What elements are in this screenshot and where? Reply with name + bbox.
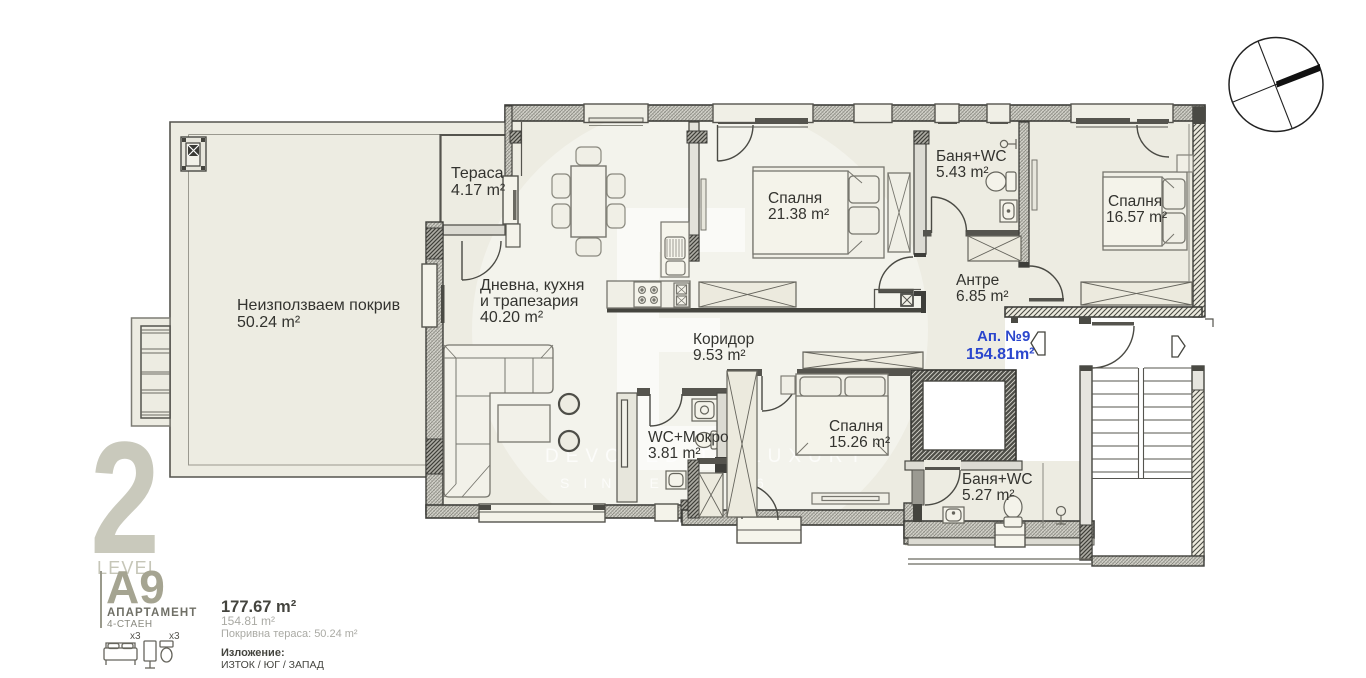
svg-text:Покривна тераса: 50.24 m²: Покривна тераса: 50.24 m²: [221, 628, 358, 640]
svg-text:9.53 m²: 9.53 m²: [693, 347, 746, 364]
svg-text:и трапезария: и трапезария: [480, 293, 578, 310]
svg-text:Спалня: Спалня: [768, 190, 822, 207]
svg-text:A9: A9: [106, 561, 165, 613]
svg-text:Баня+WC: Баня+WC: [936, 148, 1007, 165]
svg-text:Спалня: Спалня: [829, 418, 883, 435]
svg-text:16.57 m²: 16.57 m²: [1106, 209, 1167, 226]
svg-text:154.81m²: 154.81m²: [966, 346, 1035, 363]
svg-text:6.85 m²: 6.85 m²: [956, 288, 1009, 305]
svg-text:40.20 m²: 40.20 m²: [480, 309, 544, 326]
svg-text:Баня+WC: Баня+WC: [962, 471, 1033, 488]
svg-text:21.38 m²: 21.38 m²: [768, 206, 829, 223]
svg-text:Дневна, кухня: Дневна, кухня: [480, 277, 584, 294]
svg-text:50.24 m²: 50.24 m²: [237, 314, 301, 331]
svg-text:4-СТАЕН: 4-СТАЕН: [107, 619, 153, 630]
svg-text:Изложение:: Изложение:: [221, 647, 285, 659]
svg-text:4.17 m²: 4.17 m²: [451, 182, 506, 199]
svg-text:ИЗТОК / ЮГ / ЗАПАД: ИЗТОК / ЮГ / ЗАПАД: [221, 659, 324, 671]
svg-text:15.26 m²: 15.26 m²: [829, 434, 890, 451]
svg-text:3.81 m²: 3.81 m²: [648, 445, 701, 462]
svg-text:Антре: Антре: [956, 272, 999, 289]
svg-text:АПАРТАМЕНТ: АПАРТАМЕНТ: [107, 607, 197, 619]
svg-text:x3: x3: [130, 631, 141, 642]
svg-text:Спалня: Спалня: [1108, 193, 1162, 210]
svg-text:Ап. №9: Ап. №9: [977, 328, 1030, 345]
svg-text:Неизползваем покрив: Неизползваем покрив: [237, 297, 400, 314]
svg-text:5.43 m²: 5.43 m²: [936, 164, 989, 181]
svg-text:5.27 m²: 5.27 m²: [962, 487, 1015, 504]
svg-text:Тераса: Тераса: [451, 165, 504, 182]
svg-text:WC+Мокро: WC+Мокро: [648, 429, 729, 446]
svg-text:Коридор: Коридор: [693, 331, 754, 348]
svg-text:154.81 m²: 154.81 m²: [221, 614, 275, 628]
